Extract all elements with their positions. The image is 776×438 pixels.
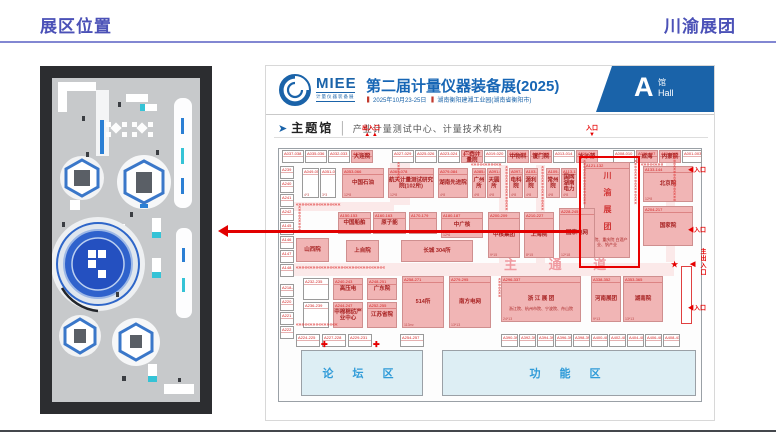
- aisle-arrows: ««««««««: [641, 163, 693, 169]
- floorplan: 论 坛 区 功 能 区 A037-038A035-036A032-033A030…: [266, 66, 716, 422]
- entrance-mark: 主出入口: [699, 248, 705, 276]
- booth-A021-022: A021-022广西计量院: [461, 150, 483, 163]
- booth-A254-257: A254-257: [400, 334, 424, 347]
- booth-A015-016: A015-016厦门院: [530, 150, 552, 163]
- entrance-mark: 入口 ▼: [586, 126, 598, 138]
- entrance-mark: ◀入口: [688, 306, 706, 312]
- booth-A408-410: A408-410: [663, 334, 680, 347]
- floorplan-panel: MIEE 计量仪器装备展 第二届计量仪器装备展(2025) 2025年10月23…: [265, 65, 715, 421]
- booth-A406-407: A406-407: [645, 334, 662, 347]
- booth-A258-271: A258-271514所113m²: [402, 276, 444, 328]
- spiral-feature: [52, 217, 145, 311]
- header-rule: [0, 41, 776, 43]
- function-zone: 功 能 区: [442, 350, 696, 396]
- entrance-mark: ◀: [690, 262, 695, 268]
- aisle-arrows: ««««««««««««««««: [296, 203, 396, 209]
- booth-A222: A222: [280, 326, 294, 339]
- booth-A396-397: A396-397: [555, 334, 572, 347]
- booth-A037-038: A037-038: [282, 150, 304, 163]
- booth-A148: A148: [280, 264, 294, 277]
- hexagon-booth-top-right: [117, 155, 171, 209]
- booth-A229-231: A229-231: [348, 334, 372, 347]
- booth-A025-026: A025-026: [415, 150, 437, 163]
- booth-A220: A220: [280, 298, 294, 311]
- booth-A049-050: A049-0504*3: [302, 168, 319, 198]
- booth-A398-399: A398-399: [573, 334, 590, 347]
- pointer-arrow: [222, 230, 579, 233]
- booth-长城 304所: 长城 304所: [401, 240, 473, 262]
- group-title: 川渝展团: [664, 12, 736, 37]
- booth-A146: A146: [280, 236, 294, 249]
- booth-A279-295: A279-295南方电网13*13: [449, 276, 491, 328]
- hexagon-booth-bottom-left: [59, 315, 101, 357]
- booth-A079-084: A079-084湖南先进院4*8: [438, 168, 468, 198]
- booth-A032-033: A032-033: [328, 150, 350, 163]
- booth-A001-003: A001-003: [682, 150, 702, 163]
- booth-A133-144: A133-144北京院12*8: [643, 166, 693, 202]
- aisle-arrows: ««««««««««««««««: [502, 166, 508, 262]
- aisle-arrows: «««««««««««««««: [296, 323, 386, 329]
- booth-A232-235: A232-235: [303, 278, 329, 300]
- booth-A006-007: A006-007成海: [636, 150, 658, 163]
- footer-rule: [0, 430, 776, 432]
- booth-A221: A221: [280, 312, 294, 325]
- booth-A404-405: A404-405: [627, 334, 644, 347]
- aisle-arrows: ««««««««««««««««: [538, 166, 544, 262]
- booth-A400-401: A400-401: [591, 334, 608, 347]
- booth-A240: A240: [280, 180, 294, 193]
- booth-A241: A241: [280, 194, 294, 207]
- slide: 展区位置 川渝展团: [0, 0, 776, 438]
- route-strip: [681, 266, 692, 324]
- booth-A113-120: A113-120国网湖南电力4*8: [561, 168, 577, 198]
- booth-A103-108: A103-108源利院4*8: [524, 168, 538, 198]
- aisle-arrows: ««««««««««««««««: [580, 160, 586, 258]
- booth-A023-024: A023-024: [438, 150, 460, 163]
- booth-A392-393: A392-393: [519, 334, 536, 347]
- booth-A019-020: A019-020: [484, 150, 506, 163]
- aisle-arrows: «««««««««««««««««: [670, 154, 676, 260]
- booth-A145: A145: [280, 222, 294, 235]
- aisle-arrows: ««««««««««««««««««««««««««««««««: [296, 266, 491, 272]
- booth-上自院: 上自院: [346, 240, 379, 262]
- forum-zone: 论 坛 区: [301, 350, 423, 396]
- aisle-arrows: «««««««««: [295, 206, 301, 264]
- booth-A109-112: A109-112常州院4*8: [546, 168, 560, 198]
- entrance-mark: ◀入口: [688, 168, 706, 174]
- booth-A035-036: A035-036: [305, 150, 327, 163]
- booth-A218-219: A218-219: [280, 284, 294, 297]
- booth-A239: A239: [280, 166, 294, 179]
- booth-A240-243: A240-243高压电: [333, 278, 363, 300]
- booth-A147: A147: [280, 250, 294, 263]
- booth-A353-365: A353-365湖南院13*13: [623, 276, 663, 322]
- booth-3d-render: [40, 66, 212, 414]
- entrance-mark: ◀入口: [688, 228, 706, 234]
- booth-A224-225: A224-225: [296, 334, 320, 347]
- booth-A296-337: A296-337浙 江 展 团浙江院、杭州市院、宁波院、舟山院24*13: [501, 276, 581, 322]
- main-aisle-label: 主 通 道: [504, 262, 620, 268]
- entrance-mark: ✚: [321, 342, 328, 348]
- booth-A338-352: A338-352河南展团9*13: [591, 276, 621, 322]
- booth-A013-014: A013-014: [553, 150, 575, 163]
- aisle-arrows: «««««««: [495, 278, 501, 324]
- booth-A248-251: A248-251广东院: [367, 278, 397, 300]
- aisle-arrows: «««««««: [394, 162, 400, 206]
- booth-A390-391: A390-391: [501, 334, 518, 347]
- entrance-mark: ★: [671, 262, 678, 268]
- booth-A242: A242: [280, 208, 294, 221]
- booth-A204-217: A204-217国家院: [643, 206, 693, 246]
- booth-A394-395: A394-395: [537, 334, 554, 347]
- booth-A180-187: A180-187中广核12*6: [441, 212, 483, 238]
- booth-A091-096: A091-096天圆所4*8: [487, 168, 501, 198]
- booth-A030-031: A030-031大连院: [351, 150, 373, 163]
- booth-A017-018: A017-018中物科: [507, 150, 529, 163]
- booth-A402-403: A402-403: [609, 334, 626, 347]
- booth-A051-052: A051-0523*3: [320, 168, 336, 198]
- booth-A228-245: A228-245国家电网12*18: [559, 208, 595, 258]
- hexagon-booth-bottom-right: [112, 318, 160, 366]
- booth-A097-102: A097-102电科院4*8: [509, 168, 523, 198]
- booth-A053-066: A053-066中国石油12*8: [342, 168, 384, 198]
- booth-A085-090: A085-090广州所4*8: [472, 168, 486, 198]
- booth-3d-render-graphic: [52, 78, 200, 402]
- entrance-mark: ✚: [373, 342, 380, 348]
- aisle-arrows: ««««««««««««««««: [631, 160, 637, 258]
- page-title: 展区位置: [40, 12, 112, 37]
- entrance-mark: 出入口 ▲ ▲: [362, 126, 380, 138]
